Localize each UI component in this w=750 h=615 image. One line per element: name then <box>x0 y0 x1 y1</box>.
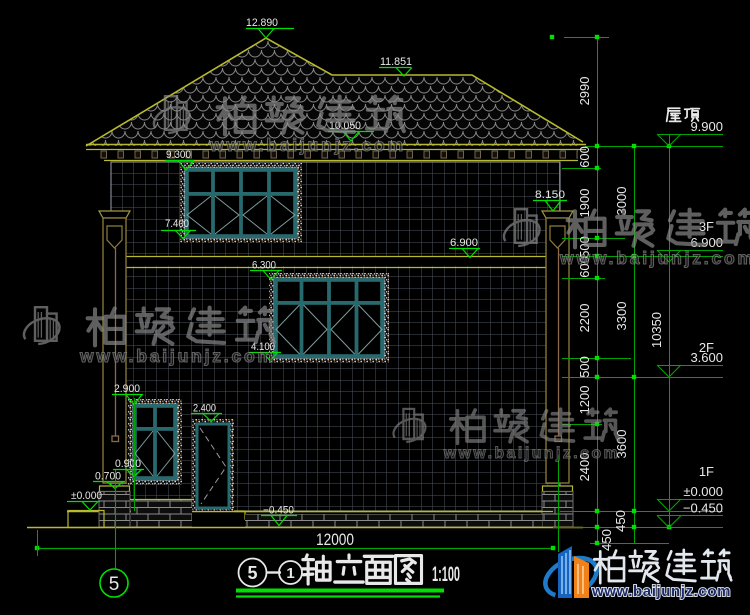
svg-text:450: 450 <box>600 529 614 551</box>
svg-text:600: 600 <box>578 146 592 168</box>
svg-text:3.600: 3.600 <box>690 350 723 365</box>
svg-text:2.400: 2.400 <box>193 403 216 415</box>
svg-text:2200: 2200 <box>578 304 592 333</box>
svg-text:−0.450: −0.450 <box>683 501 723 516</box>
svg-text:6.900: 6.900 <box>450 237 478 249</box>
svg-text:10350: 10350 <box>650 312 664 348</box>
svg-text:8.150: 8.150 <box>535 189 565 201</box>
svg-text:1900: 1900 <box>578 189 592 218</box>
svg-text:±0.000: ±0.000 <box>71 490 102 502</box>
svg-text:0.700: 0.700 <box>95 471 121 483</box>
svg-text:−0.450: −0.450 <box>263 505 294 517</box>
svg-text:3300: 3300 <box>615 301 629 330</box>
svg-text:1:100: 1:100 <box>432 563 460 586</box>
svg-text:6.300: 6.300 <box>252 260 276 272</box>
svg-text:450: 450 <box>614 510 628 532</box>
svg-text:9.300: 9.300 <box>166 149 191 161</box>
svg-text:5: 5 <box>247 563 257 583</box>
svg-text:5: 5 <box>109 574 120 595</box>
svg-text:500: 500 <box>578 356 592 378</box>
svg-text:2.900: 2.900 <box>114 383 140 395</box>
svg-text:1: 1 <box>286 565 294 582</box>
svg-text:12000: 12000 <box>316 531 354 549</box>
svg-text:12.890: 12.890 <box>246 17 278 29</box>
svg-text:1F: 1F <box>699 464 714 479</box>
svg-text:www.baijunjz.com: www.baijunjz.com <box>591 583 731 600</box>
svg-text:9.900: 9.900 <box>690 119 723 134</box>
svg-text:7.400: 7.400 <box>165 218 189 230</box>
svg-text:11.851: 11.851 <box>380 56 412 68</box>
svg-text:2990: 2990 <box>578 77 592 106</box>
svg-text:0.900: 0.900 <box>115 458 141 470</box>
svg-text:±0.000: ±0.000 <box>683 484 723 499</box>
